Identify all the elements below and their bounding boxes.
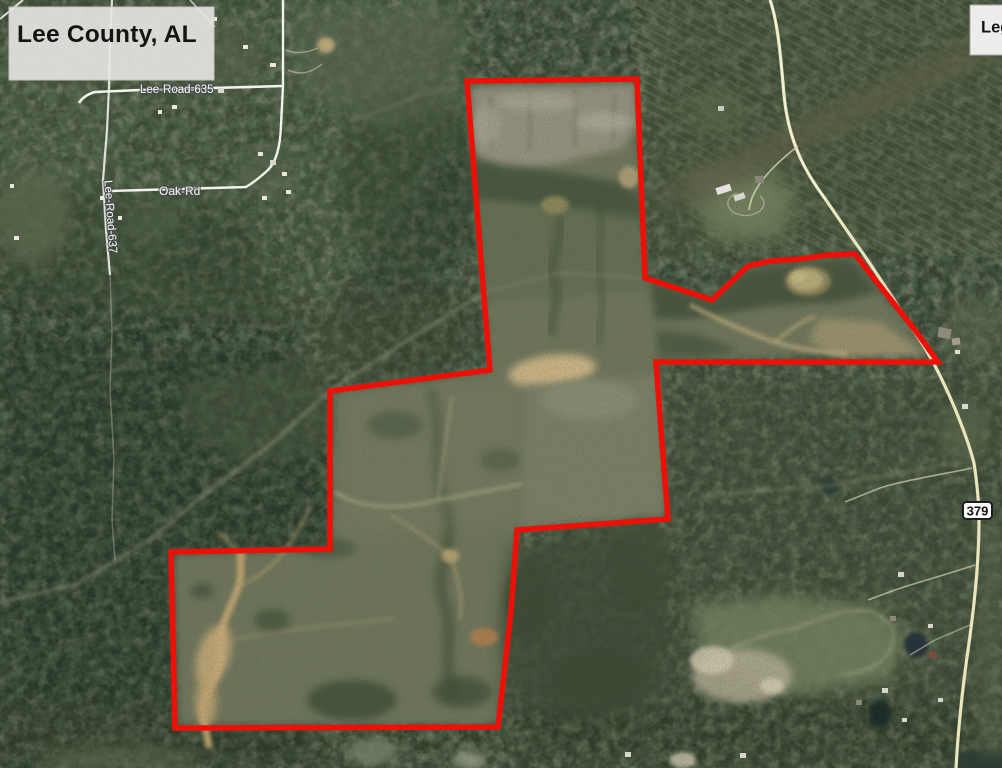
- svg-text:Leg: Leg: [981, 19, 1002, 37]
- svg-text:Oak-Rd: Oak-Rd: [159, 184, 200, 198]
- svg-text:379: 379: [967, 504, 989, 519]
- svg-text:Lee-Road-635: Lee-Road-635: [140, 84, 214, 96]
- svg-text:Lee County, AL: Lee County, AL: [17, 21, 197, 48]
